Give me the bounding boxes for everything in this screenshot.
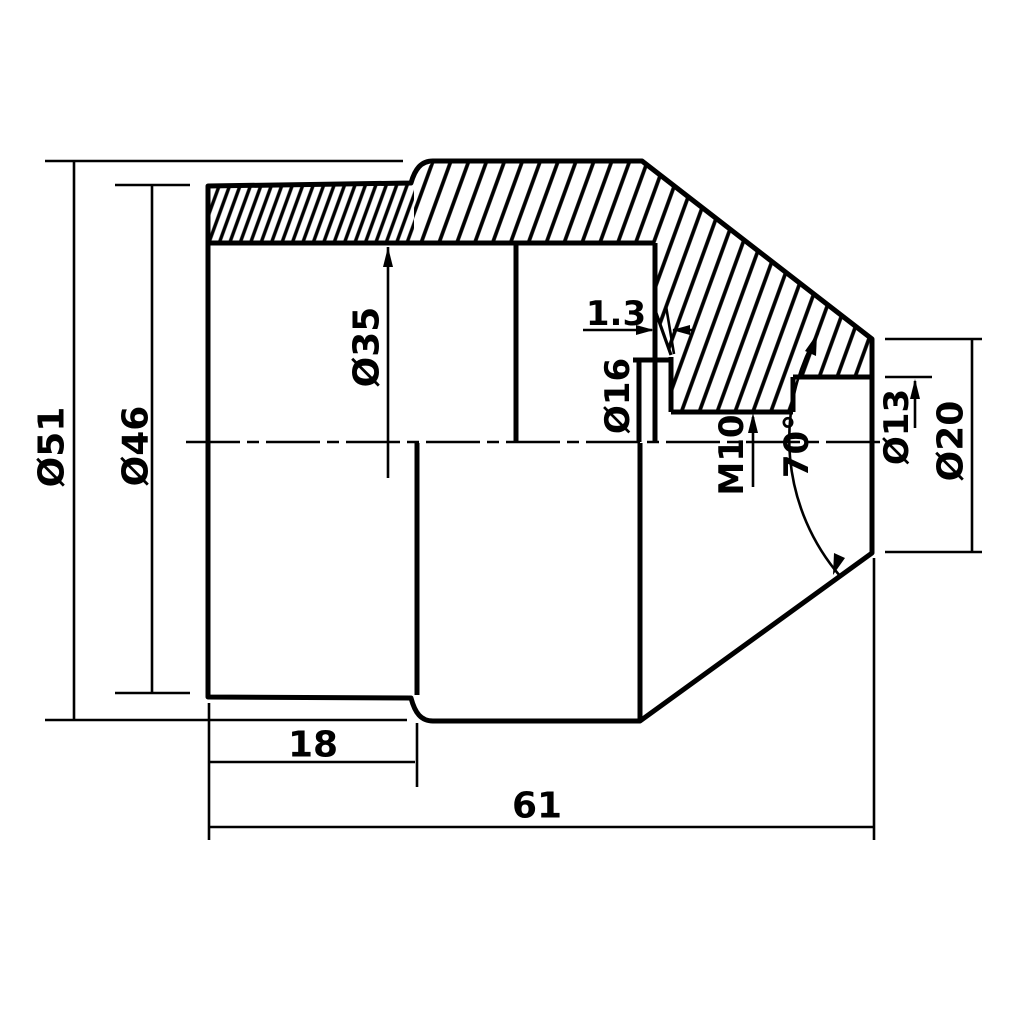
label-cs16: Ø16 (598, 358, 638, 434)
label-bore35: Ø35 (347, 307, 388, 388)
technical-drawing: Ø51 Ø46 Ø35 Ø16 M10 70° Ø13 Ø20 1.3 18 6… (0, 0, 1024, 1024)
label-od51: Ø51 (32, 407, 73, 488)
label-groove: 1.3 (586, 294, 646, 334)
hatch-upper-band (208, 184, 414, 243)
label-len61: 61 (512, 786, 562, 827)
label-angle: 70° (777, 414, 817, 478)
drawing-canvas: Ø51 Ø46 Ø35 Ø16 M10 70° Ø13 Ø20 1.3 18 6… (0, 0, 1024, 1024)
label-od46: Ø46 (116, 406, 157, 487)
label-hole13: Ø13 (877, 389, 917, 465)
label-len18: 18 (288, 725, 338, 766)
label-thread: M10 (712, 414, 752, 495)
label-face20: Ø20 (931, 401, 972, 482)
